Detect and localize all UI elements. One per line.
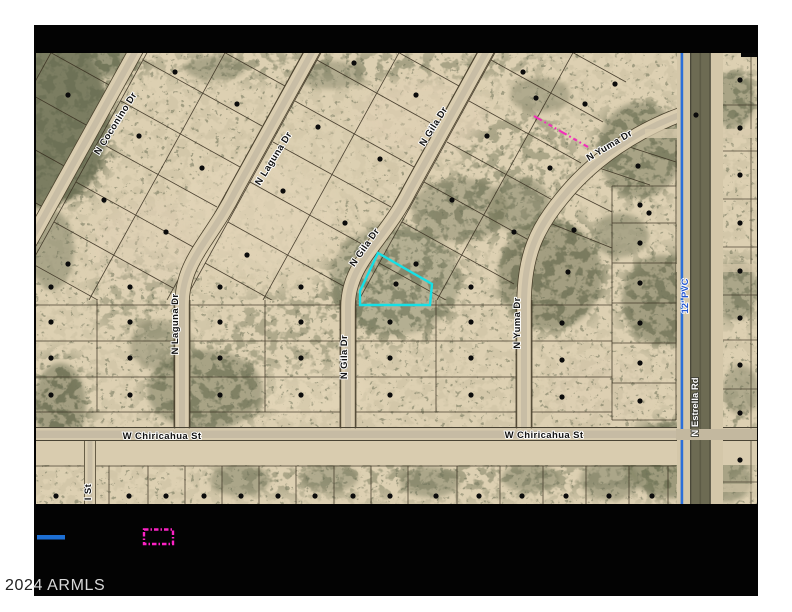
svg-text:N Yuma Dr: N Yuma Dr bbox=[512, 297, 523, 348]
svg-text:W Chiricahua St: W Chiricahua St bbox=[505, 430, 584, 441]
svg-text:12' PVC: 12' PVC bbox=[680, 278, 691, 313]
svg-text:W Chiricahua St: W Chiricahua St bbox=[123, 431, 202, 442]
svg-text:I St: I St bbox=[83, 483, 94, 500]
svg-text:N Laguna Dr: N Laguna Dr bbox=[170, 294, 181, 355]
svg-text:N Estrella Rd: N Estrella Rd bbox=[690, 377, 701, 436]
svg-text:N Gila Dr: N Gila Dr bbox=[339, 335, 350, 379]
